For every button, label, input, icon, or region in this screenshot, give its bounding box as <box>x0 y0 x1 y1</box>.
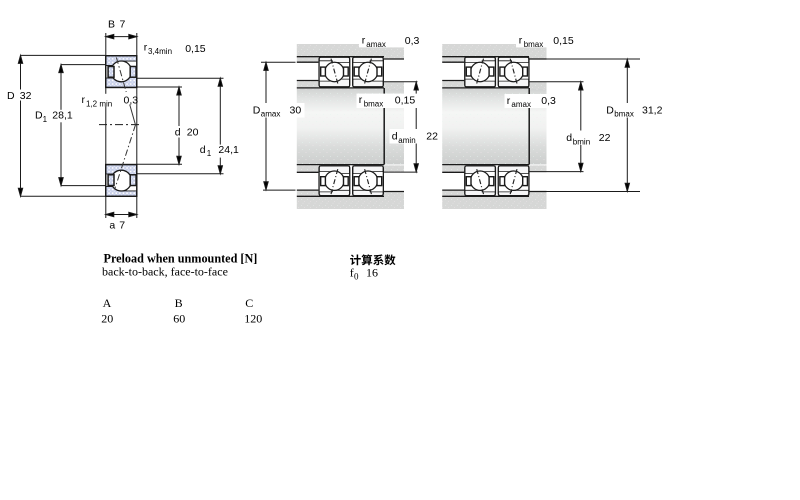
svg-text:7: 7 <box>119 220 125 232</box>
svg-text:0: 0 <box>354 271 359 281</box>
svg-text:20: 20 <box>187 126 199 138</box>
svg-text:30: 30 <box>290 104 302 116</box>
svg-text:0,3: 0,3 <box>541 95 556 107</box>
svg-text:20: 20 <box>101 312 113 326</box>
svg-text:D: D <box>7 90 15 102</box>
svg-text:D: D <box>253 104 261 116</box>
svg-text:bmax: bmax <box>524 40 544 49</box>
svg-text:0,15: 0,15 <box>553 35 574 47</box>
svg-text:r: r <box>519 35 523 47</box>
svg-text:bmin: bmin <box>573 137 590 146</box>
svg-text:d: d <box>392 131 398 143</box>
svg-text:32: 32 <box>20 90 32 102</box>
svg-text:Preload when unmounted [N]: Preload when unmounted [N] <box>104 252 258 266</box>
svg-text:0,15: 0,15 <box>395 94 416 106</box>
svg-text:amin: amin <box>398 136 415 145</box>
svg-text:16: 16 <box>366 265 378 279</box>
svg-text:d: d <box>175 126 181 138</box>
svg-text:1: 1 <box>43 115 48 124</box>
svg-text:bmax: bmax <box>364 100 384 109</box>
svg-text:r: r <box>507 95 511 107</box>
svg-text:r: r <box>362 35 366 47</box>
svg-text:1,2 min: 1,2 min <box>86 100 112 109</box>
svg-text:B: B <box>175 296 183 310</box>
svg-text:60: 60 <box>173 312 185 326</box>
svg-text:a: a <box>109 220 115 232</box>
svg-text:3,4min: 3,4min <box>148 47 172 56</box>
svg-text:C: C <box>245 296 253 310</box>
svg-text:r: r <box>359 94 363 106</box>
svg-text:0,3: 0,3 <box>124 95 139 107</box>
svg-text:amax: amax <box>511 100 531 109</box>
svg-text:back-to-back, face-to-face: back-to-back, face-to-face <box>102 265 228 279</box>
svg-text:0,15: 0,15 <box>185 43 206 55</box>
svg-text:22: 22 <box>426 131 438 143</box>
svg-text:24,1: 24,1 <box>218 144 239 156</box>
svg-text:A: A <box>103 296 112 310</box>
svg-text:0,3: 0,3 <box>405 35 420 47</box>
svg-text:bmax: bmax <box>614 110 634 119</box>
svg-text:amax: amax <box>366 40 386 49</box>
svg-text:28,1: 28,1 <box>52 109 73 121</box>
svg-text:amax: amax <box>261 110 281 119</box>
svg-text:D: D <box>606 104 614 116</box>
svg-text:22: 22 <box>599 132 611 144</box>
svg-text:B: B <box>108 19 115 31</box>
svg-text:120: 120 <box>244 312 262 326</box>
svg-text:d: d <box>566 132 572 144</box>
svg-text:1: 1 <box>207 149 212 158</box>
svg-text:7: 7 <box>120 19 126 31</box>
svg-text:d: d <box>200 144 206 156</box>
svg-text:31,2: 31,2 <box>642 104 663 116</box>
svg-text:r: r <box>82 94 86 106</box>
